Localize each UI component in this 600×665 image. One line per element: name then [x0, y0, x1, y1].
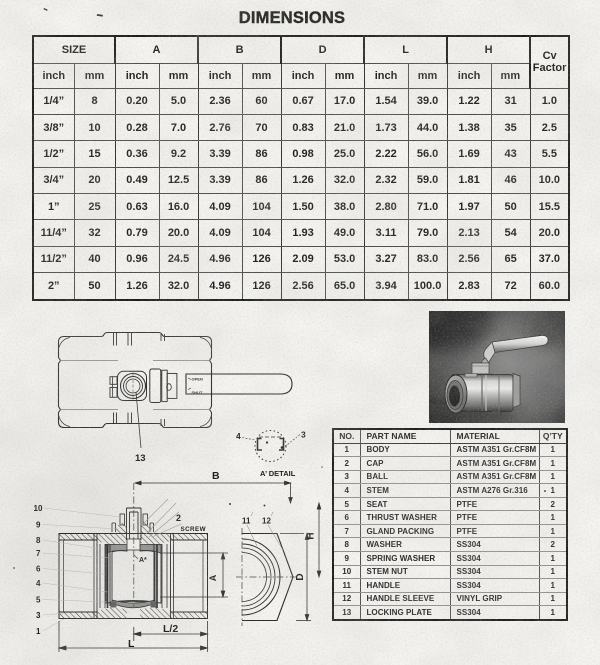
- svg-text:4: 4: [236, 431, 241, 441]
- svg-text:2: 2: [176, 513, 181, 523]
- svg-text:3: 3: [301, 430, 306, 440]
- svg-text:8: 8: [36, 536, 41, 545]
- svg-text:3: 3: [36, 611, 41, 620]
- svg-text:L: L: [128, 638, 135, 650]
- svg-text:A: A: [208, 574, 218, 581]
- svg-text:12: 12: [262, 517, 271, 526]
- svg-text:9: 9: [36, 521, 41, 530]
- svg-text:10: 10: [34, 504, 43, 513]
- svg-text:6: 6: [36, 565, 41, 574]
- svg-text:5: 5: [36, 596, 41, 605]
- svg-text:11: 11: [242, 517, 251, 526]
- svg-text:1: 1: [36, 627, 41, 636]
- svg-text:B: B: [212, 470, 220, 482]
- svg-text:D: D: [295, 573, 306, 580]
- svg-text:4: 4: [36, 579, 41, 588]
- svg-text:7: 7: [36, 549, 41, 558]
- svg-text:OPEN: OPEN: [192, 377, 203, 382]
- svg-text:A*: A*: [139, 557, 147, 564]
- svg-text:SHUT: SHUT: [192, 390, 203, 395]
- svg-text:H: H: [306, 532, 317, 539]
- svg-text:SCREW: SCREW: [181, 526, 206, 533]
- svg-text:L/2: L/2: [163, 623, 178, 635]
- svg-text:13: 13: [135, 453, 146, 464]
- svg-text:A’ DETAIL: A’ DETAIL: [260, 469, 296, 478]
